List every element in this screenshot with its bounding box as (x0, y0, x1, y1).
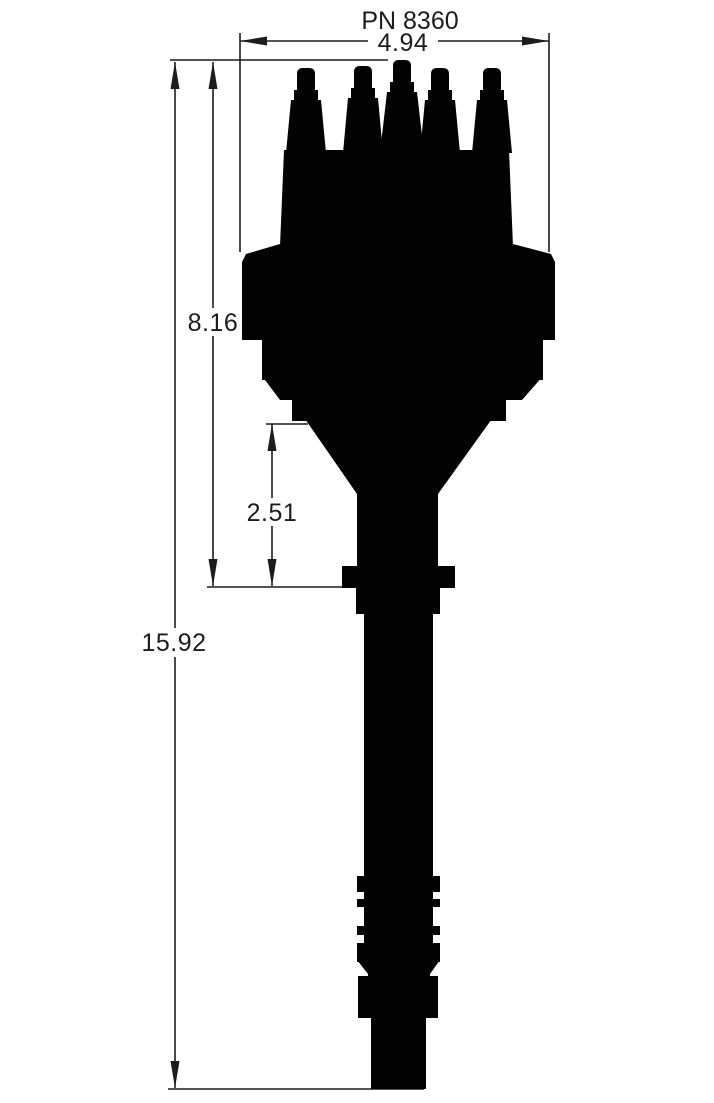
ring-groove-cut (353, 892, 364, 899)
cap-tower (472, 68, 512, 153)
shaft-bushing (358, 976, 438, 1018)
arrowhead-right-icon (522, 37, 549, 46)
distributor-silhouette (242, 60, 555, 1089)
drive-shaft (364, 612, 433, 962)
dimension-funnel-to-collar: 2.51 (247, 424, 298, 586)
cap-body (280, 150, 513, 246)
cap-tower (343, 66, 383, 153)
dimension-cap-to-collar: 8.16 (188, 62, 239, 586)
shaft-tip (371, 1016, 426, 1089)
arrowhead-down-icon (268, 559, 277, 586)
dimension-cap-to-collar-value: 8.16 (188, 309, 239, 337)
ring-groove-cut (433, 935, 444, 943)
arrowhead-up-icon (209, 62, 218, 89)
neck-funnel (303, 416, 494, 494)
cap-tower (380, 60, 424, 153)
shaft-collar (342, 566, 455, 588)
dimension-overall-length-value: 15.92 (141, 629, 206, 657)
housing-upper-band (262, 338, 543, 380)
dimension-funnel-to-collar-value: 2.51 (247, 499, 298, 527)
shaft-ring-upper (357, 876, 440, 907)
arrowhead-down-icon (209, 559, 218, 586)
ring-groove-cut (433, 892, 444, 899)
cap-towers (286, 60, 512, 153)
dimension-overall-length: 15.92 (141, 62, 206, 1088)
dimension-cap-width-value: 4.94 (378, 29, 429, 57)
shaft-segment (356, 586, 440, 614)
shaft-ring-lower (357, 926, 440, 962)
arrowhead-up-icon (268, 424, 277, 451)
ring-groove-cut (353, 935, 364, 943)
technical-drawing-page: PN 8360 4.94 15.92 (0, 0, 714, 1103)
arrowhead-down-icon (171, 1061, 180, 1088)
bushing-neck (368, 960, 430, 978)
arrowhead-up-icon (171, 62, 180, 89)
arrowhead-left-icon (240, 37, 267, 46)
distributor-dimension-drawing: PN 8360 4.94 15.92 (0, 0, 714, 1103)
cap-tower (420, 68, 460, 153)
upper-shaft (357, 488, 438, 570)
cap-flange (242, 244, 555, 340)
cap-tower (286, 68, 326, 153)
